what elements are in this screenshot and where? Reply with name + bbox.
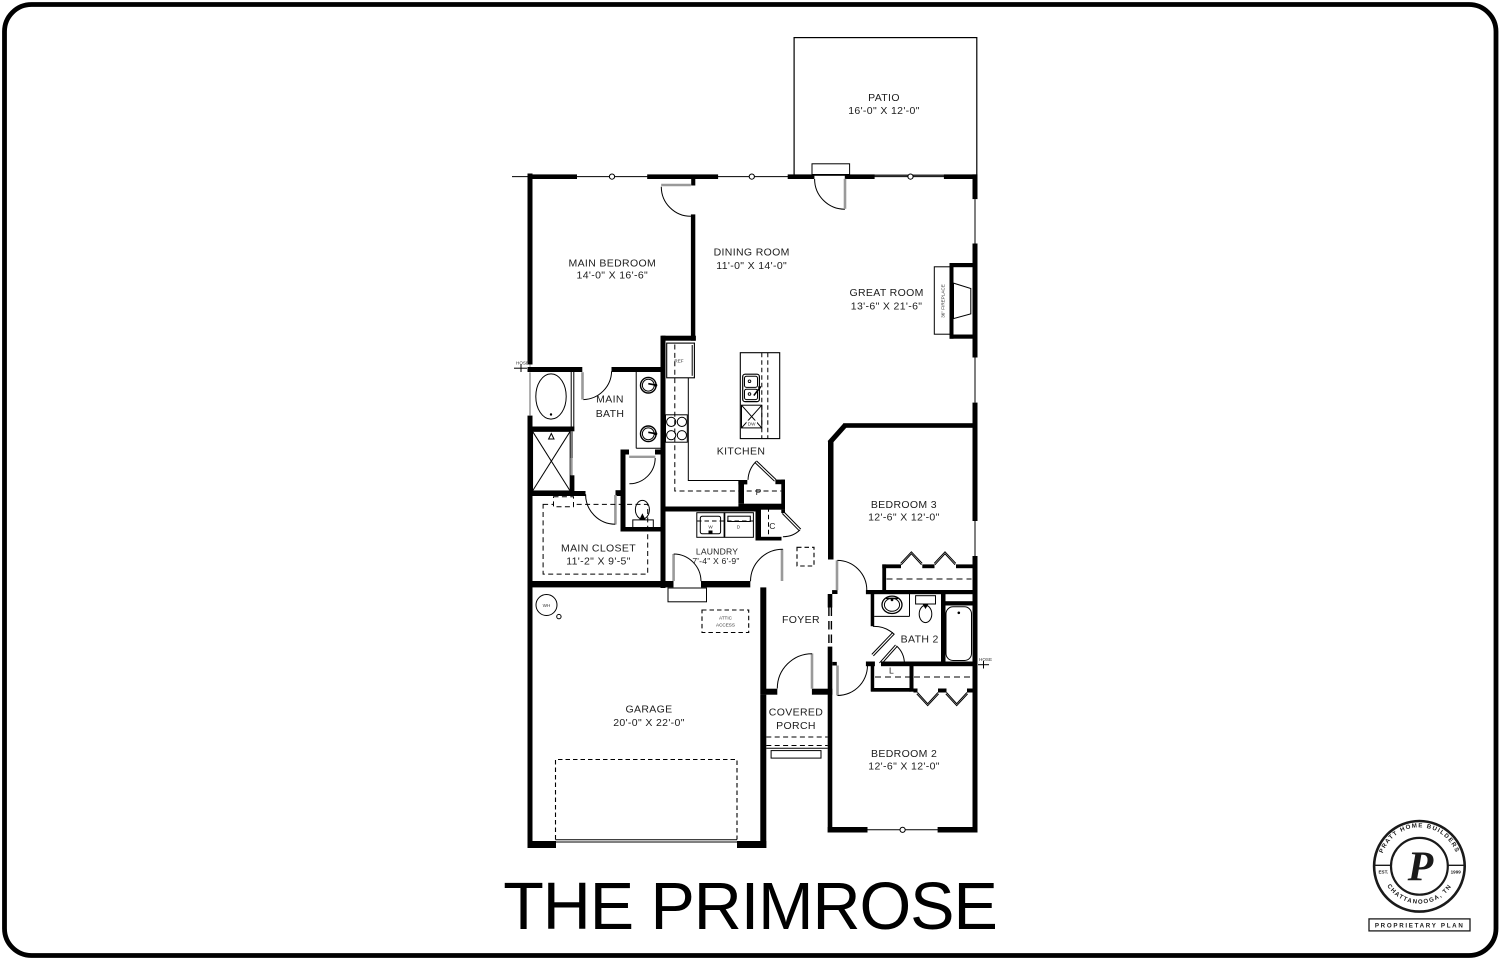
svg-text:MAIN: MAIN <box>596 394 624 406</box>
svg-text:13'-6" X 21'-6": 13'-6" X 21'-6" <box>851 301 923 313</box>
svg-text:DW: DW <box>748 422 756 427</box>
svg-text:1999: 1999 <box>1451 870 1462 875</box>
svg-text:C: C <box>769 521 775 531</box>
svg-text:WH: WH <box>543 603 551 608</box>
svg-text:PORCH: PORCH <box>776 720 816 732</box>
svg-text:KITCHEN: KITCHEN <box>717 445 766 457</box>
svg-text:MAIN CLOSET: MAIN CLOSET <box>561 542 636 554</box>
svg-text:PROPRIETARY PLAN: PROPRIETARY PLAN <box>1375 923 1465 930</box>
svg-text:EST.: EST. <box>1378 870 1388 875</box>
svg-text:7'-4" X 6'-9": 7'-4" X 6'-9" <box>692 556 739 566</box>
svg-text:ACCESS: ACCESS <box>716 623 735 628</box>
svg-text:P: P <box>756 487 762 497</box>
svg-text:DINING ROOM: DINING ROOM <box>714 247 790 259</box>
svg-text:36" FIREPLACE: 36" FIREPLACE <box>941 284 946 318</box>
svg-text:BEDROOM 2: BEDROOM 2 <box>871 748 937 760</box>
svg-text:PATIO: PATIO <box>868 92 900 104</box>
svg-text:20'-0" X 22'-0": 20'-0" X 22'-0" <box>613 717 685 729</box>
svg-text:ATTIC: ATTIC <box>719 616 733 621</box>
svg-text:12'-6" X 12'-0": 12'-6" X 12'-0" <box>868 511 940 523</box>
svg-text:16'-0" X 12'-0": 16'-0" X 12'-0" <box>848 105 920 117</box>
svg-text:11'-0" X 14'-0": 11'-0" X 14'-0" <box>716 260 787 272</box>
svg-text:12'-6" X 12'-0": 12'-6" X 12'-0" <box>868 761 940 773</box>
svg-text:HOSE: HOSE <box>516 361 529 366</box>
svg-text:L: L <box>889 666 894 676</box>
svg-text:COVERED: COVERED <box>769 707 823 719</box>
svg-text:LAUNDRY: LAUNDRY <box>696 547 738 557</box>
svg-text:BEDROOM 3: BEDROOM 3 <box>871 499 937 511</box>
svg-text:REF: REF <box>674 359 683 364</box>
svg-text:GARAGE: GARAGE <box>625 704 672 716</box>
svg-text:11'-2" X 9'-5": 11'-2" X 9'-5" <box>566 555 631 567</box>
svg-text:14'-0" X 16'-6": 14'-0" X 16'-6" <box>577 269 649 281</box>
svg-text:FOYER: FOYER <box>782 614 820 626</box>
svg-text:P: P <box>1407 845 1434 891</box>
svg-text:BATH 2: BATH 2 <box>901 634 939 646</box>
svg-text:BATH: BATH <box>596 408 625 420</box>
svg-text:W: W <box>708 525 713 530</box>
svg-text:HOSE: HOSE <box>979 657 992 662</box>
svg-text:MAIN BEDROOM: MAIN BEDROOM <box>568 257 656 269</box>
svg-text:THE PRIMROSE: THE PRIMROSE <box>503 870 997 944</box>
svg-text:GREAT ROOM: GREAT ROOM <box>849 287 923 299</box>
